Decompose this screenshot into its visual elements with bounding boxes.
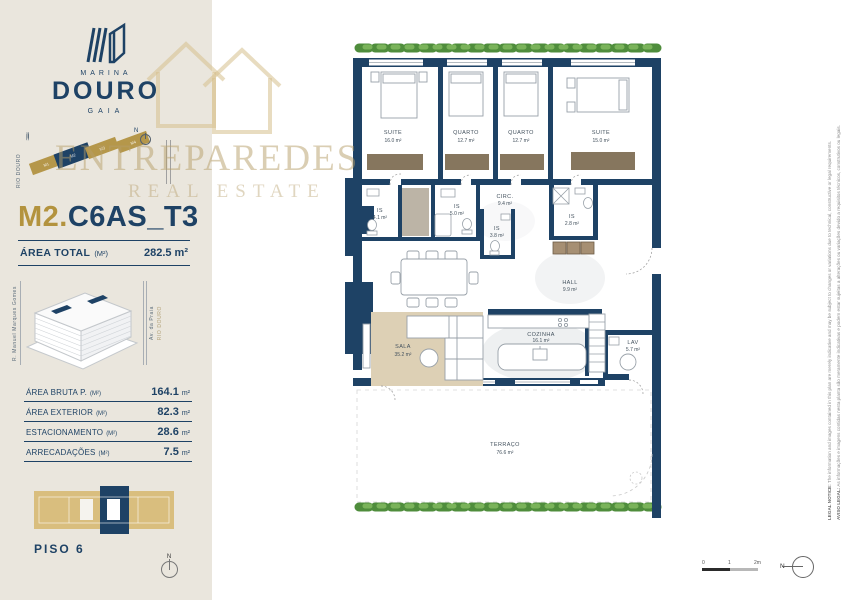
- rio-douro-label: RIO DOURO: [16, 132, 22, 188]
- room-label-sala: SALA: [395, 344, 411, 350]
- street-line: [146, 281, 147, 365]
- panel-north-icon: N: [156, 554, 182, 578]
- room-label-is2: IS: [454, 204, 460, 210]
- svg-text:3.8 m²: 3.8 m²: [490, 233, 505, 239]
- svg-text:76.6 m²: 76.6 m²: [497, 450, 514, 456]
- mini-map-north-icon: N: [134, 128, 151, 145]
- room-label-hall: HALL: [562, 280, 577, 286]
- unit-block-prefix: M2.: [18, 201, 68, 233]
- block-m3: M3: [85, 137, 119, 159]
- svg-text:9.4 m²: 9.4 m²: [498, 201, 513, 207]
- room-label-is4: IS: [569, 214, 575, 220]
- marina-douro-logo: MARINA DOURO GAIA: [0, 22, 212, 115]
- river-right-label: RIO DOURO: [157, 306, 163, 340]
- hedge-top: [359, 47, 659, 48]
- room-label-is3: IS: [494, 226, 500, 232]
- svg-text:12.7 m²: 12.7 m²: [513, 138, 530, 144]
- scale-one: 1: [728, 560, 731, 566]
- building-figure: R. Manuel Marques Gomes Av. da Praia: [12, 268, 206, 378]
- floor-plan: SUITE 16.0 m² QUARTO 12.7 m² QUARTO 12.7…: [345, 26, 685, 528]
- svg-text:2.8 m²: 2.8 m²: [565, 221, 580, 227]
- legal-notice-pt: AVISO LEGAL: As informações e imagens co…: [836, 12, 841, 520]
- room-label-terraco: TERRAÇO: [490, 442, 520, 448]
- table-row: ÁREA EXTERIOR(M²) 82.3m²: [24, 402, 192, 422]
- scale-zero: 0: [702, 560, 705, 566]
- floor-label: PISO 6: [34, 542, 85, 556]
- legal-notice-en: LEGAL NOTICE: The information and images…: [827, 12, 832, 520]
- unit-title: M2.C6AS_T3: [18, 201, 199, 234]
- areas-table: ÁREA BRUTA P.(M²) 164.1m² ÁREA EXTERIOR(…: [24, 382, 192, 462]
- laundry-cabinets: [553, 242, 594, 254]
- plan-north-icon: N: [780, 554, 822, 584]
- room-label-suite1: SUITE: [384, 130, 402, 136]
- hedge-bottom: [359, 506, 657, 507]
- svg-text:16.0 m²: 16.0 m²: [385, 138, 402, 144]
- wave-icon: ≈≈≈≈: [24, 132, 30, 188]
- brand-marina: MARINA: [0, 70, 212, 77]
- room-label-quarto1: QUARTO: [453, 130, 479, 136]
- brand-gaia: GAIA: [0, 108, 212, 115]
- rio-douro-label-group: RIO DOURO ≈≈≈≈: [16, 132, 30, 188]
- svg-text:16.1 m²: 16.1 m²: [533, 338, 550, 344]
- room-label-suite2: SUITE: [592, 130, 610, 136]
- road-line: [166, 140, 167, 184]
- street-right-group: Av. da Praia RIO DOURO: [143, 268, 163, 378]
- table-row: ESTACIONAMENTO(M²) 28.6m²: [24, 422, 192, 442]
- svg-text:9.9 m²: 9.9 m²: [563, 287, 578, 293]
- left-info-panel: MARINA DOURO GAIA RIO DOURO ≈≈≈≈ M1 M2 M…: [0, 0, 212, 600]
- area-total-value: 282.5 m²: [144, 247, 188, 259]
- building-axonometric: [21, 271, 143, 375]
- room-label-circ: CIRC.: [497, 194, 514, 200]
- unit-code: C6AS_T3: [68, 201, 199, 233]
- room-label-quarto2: QUARTO: [508, 130, 534, 136]
- site-mini-map: RIO DOURO ≈≈≈≈ M1 M2 M3 M4 N: [0, 128, 212, 192]
- svg-text:35.2 m²: 35.2 m²: [395, 352, 412, 358]
- road-line: [170, 140, 171, 184]
- area-total-unit: (M²): [94, 249, 108, 258]
- brochure-page: MARINA DOURO GAIA RIO DOURO ≈≈≈≈ M1 M2 M…: [0, 0, 848, 600]
- dining-table: [391, 251, 478, 307]
- brand-douro: DOURO: [0, 79, 212, 104]
- street-line: [143, 281, 144, 365]
- closet: [402, 188, 429, 236]
- bedroom-furniture: [371, 72, 629, 118]
- street-right-label: Av. da Praia: [149, 306, 155, 340]
- table-row: ARRECADAÇÕES(M²) 7.5m²: [24, 442, 192, 462]
- area-total-label: ÁREA TOTAL: [20, 247, 90, 259]
- svg-text:12.7 m²: 12.7 m²: [458, 138, 475, 144]
- building-logo-icon: [80, 22, 132, 66]
- table-row: ÁREA BRUTA P.(M²) 164.1m²: [24, 382, 192, 402]
- scale-two: 2m: [754, 560, 761, 566]
- street-left-label: R. Manuel Marques Gomes: [12, 286, 18, 361]
- svg-text:5.0 m²: 5.0 m²: [450, 211, 465, 217]
- room-label-lav: LAV: [627, 340, 638, 346]
- room-label-is1: IS: [377, 208, 383, 214]
- svg-text:4.1 m²: 4.1 m²: [373, 215, 388, 221]
- scale-bar: 0 1 2m: [702, 560, 774, 571]
- area-total-row: ÁREA TOTAL (M²) 282.5 m²: [18, 240, 190, 266]
- svg-text:15.0 m²: 15.0 m²: [593, 138, 610, 144]
- stairs: [589, 314, 605, 372]
- street-left-group: R. Manuel Marques Gomes: [12, 268, 21, 378]
- walls: [345, 58, 661, 518]
- floor-key-plan: [34, 486, 174, 539]
- svg-text:5.7 m²: 5.7 m²: [626, 347, 641, 353]
